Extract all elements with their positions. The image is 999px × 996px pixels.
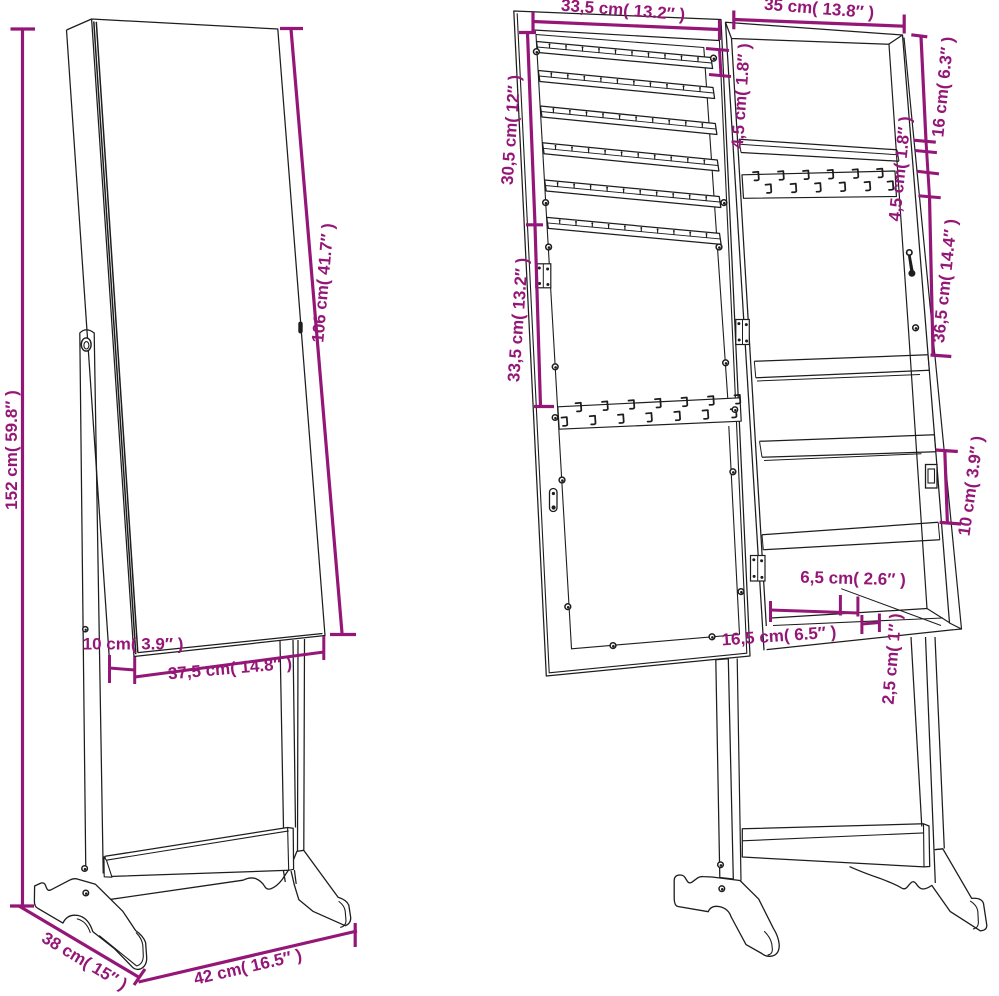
svg-text:33,5 cm( 13.2″ ): 33,5 cm( 13.2″ ) xyxy=(504,257,532,382)
svg-text:2,5 cm( 1″ ): 2,5 cm( 1″ ) xyxy=(879,613,906,706)
svg-text:42 cm( 16.5″ ): 42 cm( 16.5″ ) xyxy=(192,945,304,988)
svg-text:10 cm( 3.9″ ): 10 cm( 3.9″ ) xyxy=(955,435,988,537)
svg-text:4,5 cm( 1.8″ ): 4,5 cm( 1.8″ ) xyxy=(728,43,754,150)
svg-text:16 cm( 6.3″ ): 16 cm( 6.3″ ) xyxy=(928,36,957,138)
svg-text:10 cm( 3.9″ ): 10 cm( 3.9″ ) xyxy=(83,634,184,653)
svg-text:106 cm( 41.7″ ): 106 cm( 41.7″ ) xyxy=(308,222,337,343)
svg-text:6,5 cm( 2.6″ ): 6,5 cm( 2.6″ ) xyxy=(800,568,906,590)
svg-text:30,5 cm( 12″ ): 30,5 cm( 12″ ) xyxy=(498,74,525,185)
svg-text:37,5 cm( 14.8″ ): 37,5 cm( 14.8″ ) xyxy=(167,654,293,684)
svg-text:152 cm( 59.8″ ): 152 cm( 59.8″ ) xyxy=(2,390,21,510)
svg-text:36,5 cm( 14.4″ ): 36,5 cm( 14.4″ ) xyxy=(929,218,961,344)
svg-text:4,5 cm( 1.8″ ): 4,5 cm( 1.8″ ) xyxy=(885,115,915,222)
svg-text:35 cm( 13.8″ ): 35 cm( 13.8″ ) xyxy=(763,0,874,22)
